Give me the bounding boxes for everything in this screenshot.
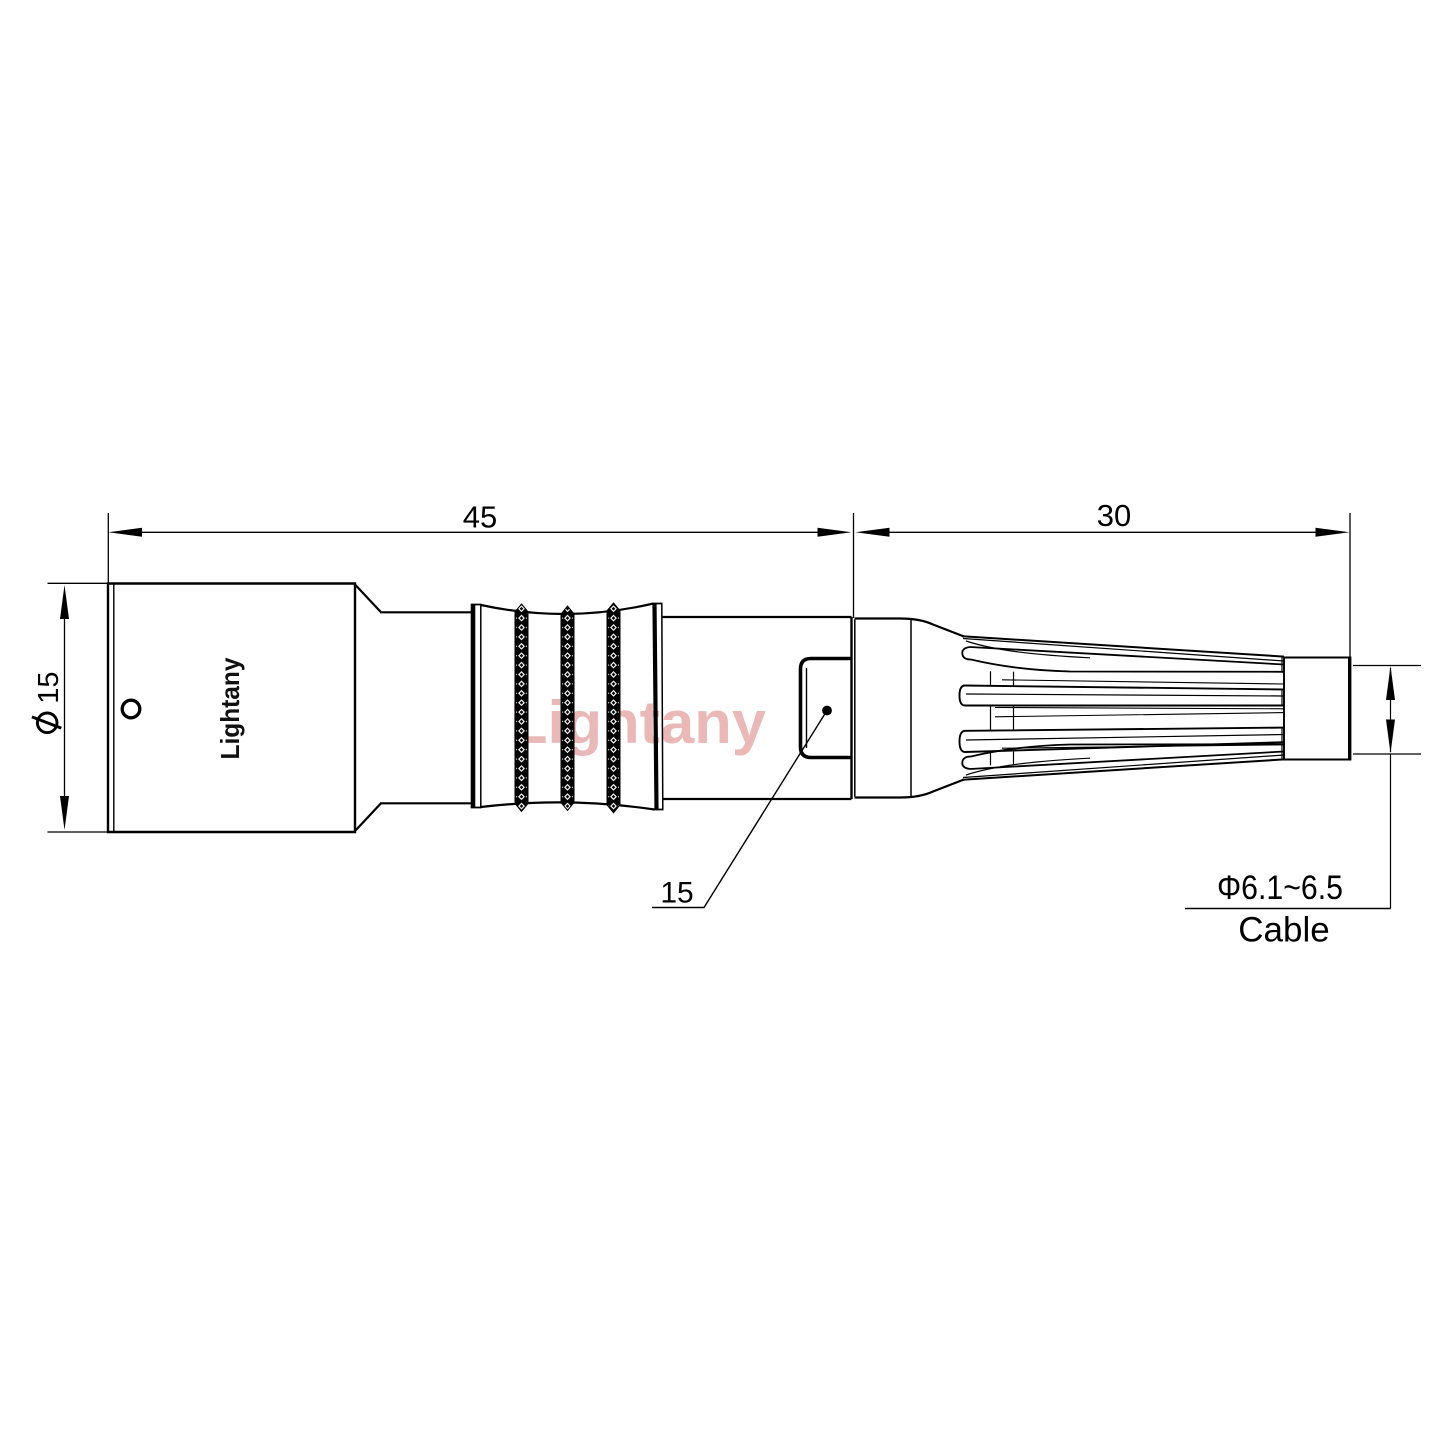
svg-text:45: 45 [463, 500, 497, 535]
svg-text:15: 15 [33, 672, 65, 704]
svg-text:Lightany: Lightany [510, 689, 767, 756]
svg-text:Lightany: Lightany [215, 657, 245, 759]
svg-text:15: 15 [660, 877, 693, 910]
svg-text:30: 30 [1097, 498, 1131, 533]
svg-text:Cable: Cable [1238, 911, 1329, 950]
svg-text:Φ6.1~6.5: Φ6.1~6.5 [1217, 869, 1343, 907]
